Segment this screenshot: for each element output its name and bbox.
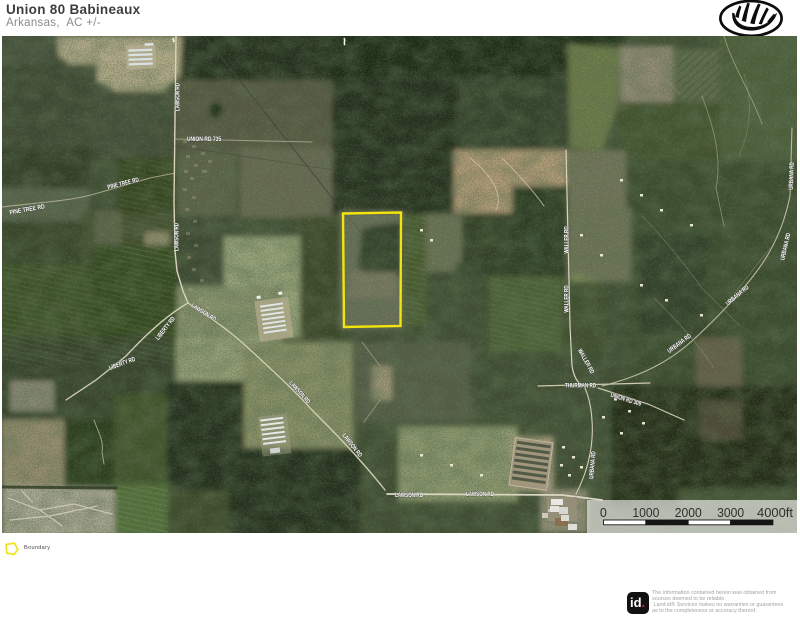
svg-text:2000: 2000 bbox=[675, 506, 702, 520]
svg-text:WALLER RD: WALLER RD bbox=[564, 285, 571, 312]
svg-text:WALLER RD: WALLER RD bbox=[564, 226, 571, 253]
svg-text:0: 0 bbox=[600, 506, 607, 520]
svg-text:LAWSON RD: LAWSON RD bbox=[395, 492, 423, 499]
svg-text:URBANA RD: URBANA RD bbox=[788, 162, 796, 190]
svg-text:LAWSON RD: LAWSON RD bbox=[466, 491, 494, 498]
svg-text:4000ft: 4000ft bbox=[757, 506, 794, 520]
svg-text:THURMAN RD: THURMAN RD bbox=[565, 383, 596, 390]
svg-text:3000: 3000 bbox=[717, 506, 744, 520]
svg-text:UNION RD 735: UNION RD 735 bbox=[187, 136, 222, 143]
svg-text:1000: 1000 bbox=[632, 506, 659, 520]
svg-text:LAWSON RD: LAWSON RD bbox=[174, 223, 181, 251]
svg-text:LAWSON RD: LAWSON RD bbox=[175, 83, 182, 111]
